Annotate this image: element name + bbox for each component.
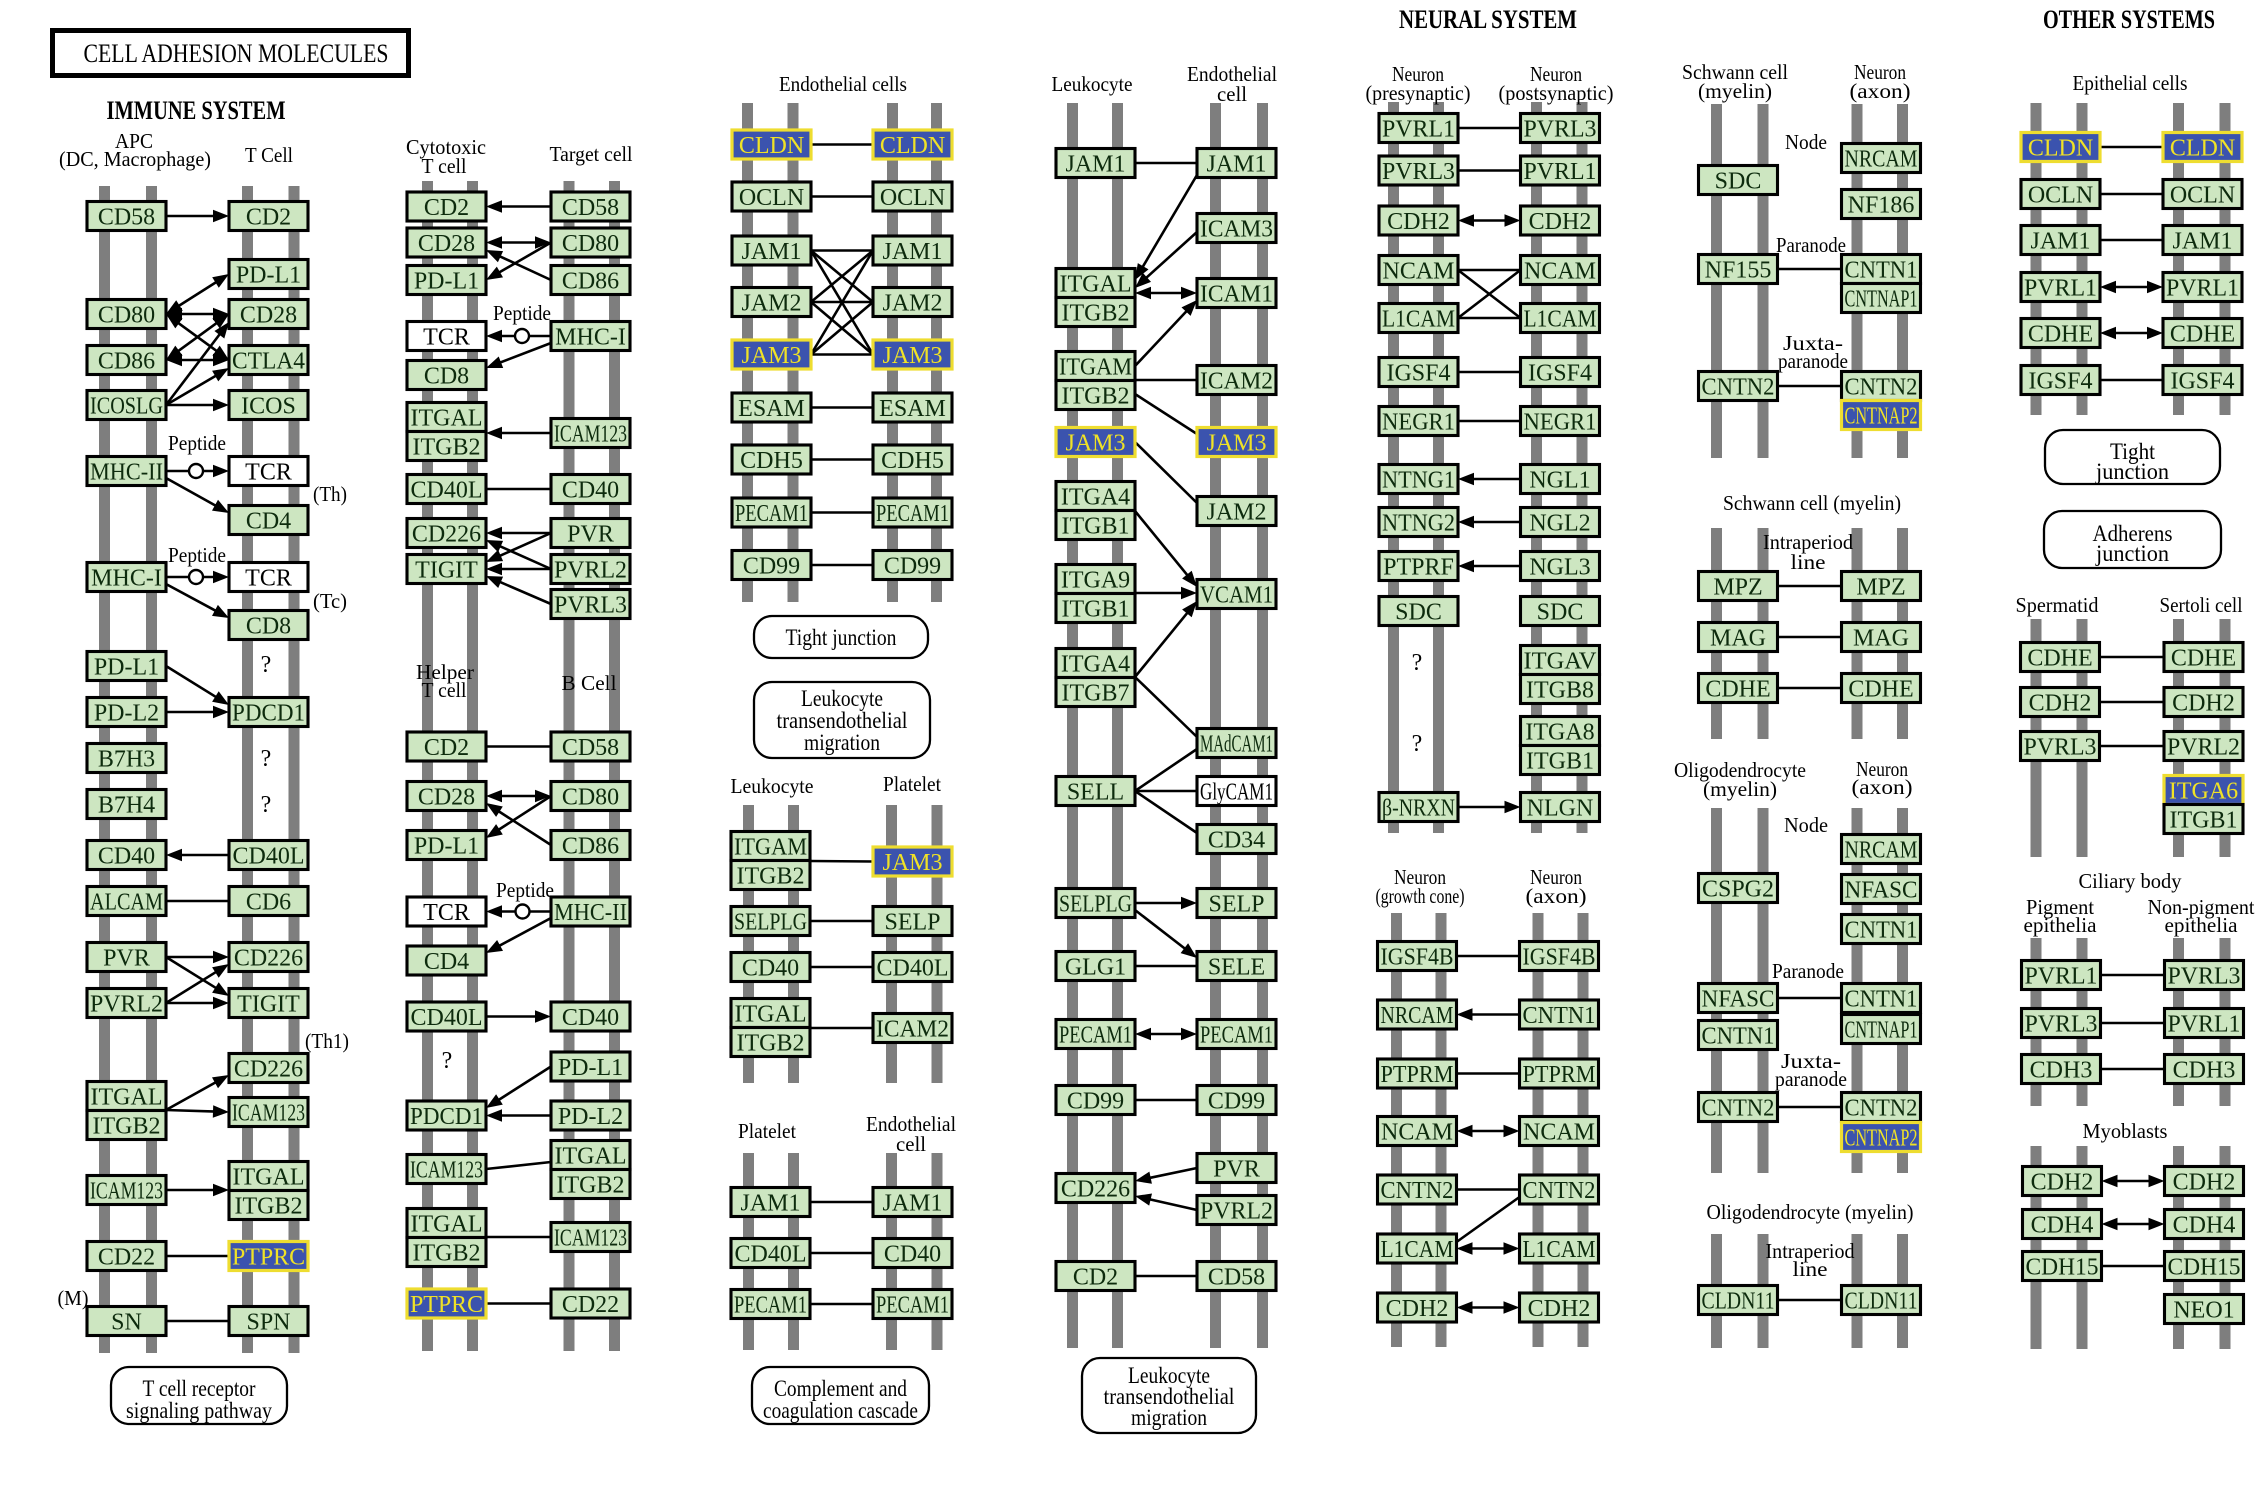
svg-text:NEO1: NEO1	[2173, 1298, 2234, 1324]
svg-text:(Th): (Th)	[313, 482, 347, 506]
svg-text:PECAM1: PECAM1	[734, 1293, 807, 1319]
svg-text:CDH2: CDH2	[2173, 1170, 2236, 1196]
svg-text:CD22: CD22	[562, 1292, 619, 1318]
svg-text:ITGB1: ITGB1	[1062, 597, 1130, 623]
svg-text:CD2: CD2	[246, 205, 291, 231]
svg-text:ESAM: ESAM	[738, 396, 805, 422]
svg-text:OCLN: OCLN	[739, 185, 804, 211]
svg-text:GlyCAM1: GlyCAM1	[1200, 780, 1273, 806]
svg-text:?: ?	[1412, 650, 1423, 676]
svg-text:PVRL3: PVRL3	[2025, 1012, 2098, 1038]
svg-text:CDH15: CDH15	[2168, 1255, 2241, 1281]
svg-text:SELL: SELL	[1067, 780, 1124, 806]
svg-text:MAG: MAG	[1853, 626, 1909, 652]
svg-text:ALCAM: ALCAM	[90, 890, 163, 916]
svg-text:SELP: SELP	[884, 910, 940, 936]
svg-text:PVRL3: PVRL3	[2024, 735, 2097, 761]
svg-text:junction: junction	[2095, 541, 2169, 566]
svg-text:?: ?	[1412, 731, 1423, 757]
svg-text:CNTNAP2: CNTNAP2	[1845, 1126, 1918, 1152]
svg-text:ITGB2: ITGB2	[413, 435, 481, 461]
svg-text:paranode: paranode	[1778, 349, 1848, 373]
svg-text:PVRL1: PVRL1	[2024, 276, 2097, 302]
svg-text:NTNG2: NTNG2	[1382, 511, 1455, 537]
svg-text:L1CAM: L1CAM	[1524, 307, 1597, 333]
svg-text:CDH4: CDH4	[2173, 1213, 2236, 1239]
svg-text:CD40: CD40	[884, 1242, 941, 1268]
svg-text:TCR: TCR	[245, 460, 292, 486]
svg-text:JAM3: JAM3	[882, 850, 942, 876]
svg-text:CD99: CD99	[743, 554, 800, 580]
svg-text:ITGB2: ITGB2	[93, 1114, 161, 1140]
svg-text:CTLA4: CTLA4	[232, 349, 305, 375]
svg-text:NLGN: NLGN	[1527, 796, 1594, 822]
svg-text:ICAM2: ICAM2	[876, 1017, 949, 1043]
svg-text:CDHE: CDHE	[1848, 677, 1913, 703]
svg-text:CD40L: CD40L	[735, 1242, 807, 1268]
svg-text:SELPLG: SELPLG	[734, 910, 807, 936]
svg-text:CDHE: CDHE	[2027, 646, 2092, 672]
svg-text:PTPRC: PTPRC	[232, 1245, 305, 1271]
svg-text:cell: cell	[896, 1132, 926, 1156]
svg-text:CD226: CD226	[412, 522, 481, 548]
svg-text:PVRL2: PVRL2	[554, 558, 627, 584]
svg-text:L1CAM: L1CAM	[1381, 1237, 1454, 1263]
svg-text:Oligodendrocyte (myelin): Oligodendrocyte (myelin)	[1707, 1200, 1914, 1224]
svg-text:ICAM123: ICAM123	[410, 1158, 483, 1184]
svg-text:CD40L: CD40L	[877, 956, 949, 982]
svg-text:(postsynaptic): (postsynaptic)	[1499, 81, 1614, 105]
svg-text:B Cell: B Cell	[562, 671, 617, 695]
svg-text:IGSF4: IGSF4	[1528, 361, 1592, 387]
svg-text:NGL1: NGL1	[1529, 468, 1590, 494]
svg-text:CLDN: CLDN	[2028, 136, 2093, 162]
svg-text:Node: Node	[1785, 130, 1827, 154]
svg-text:JAM1: JAM1	[1206, 152, 1266, 178]
svg-text:VCAM1: VCAM1	[1200, 583, 1273, 609]
svg-text:ICAM123: ICAM123	[554, 422, 627, 448]
svg-text:CDH2: CDH2	[1386, 1296, 1449, 1322]
svg-text:NTNG1: NTNG1	[1382, 468, 1455, 494]
svg-text:NCAM: NCAM	[1524, 259, 1596, 285]
svg-text:?: ?	[442, 1048, 453, 1074]
svg-text:PECAM1: PECAM1	[735, 501, 808, 527]
svg-text:CNTNAP1: CNTNAP1	[1845, 1018, 1918, 1044]
svg-text:ITGB2: ITGB2	[1062, 301, 1130, 327]
svg-text:CDH3: CDH3	[2030, 1058, 2093, 1084]
svg-text:NF186: NF186	[1848, 193, 1915, 219]
svg-text:CNTNAP1: CNTNAP1	[1845, 287, 1918, 313]
svg-text:CD2: CD2	[1073, 1265, 1118, 1291]
svg-text:SDC: SDC	[1395, 600, 1442, 626]
svg-text:CNTN1: CNTN1	[1845, 918, 1918, 944]
svg-text:PVRL1: PVRL1	[1524, 159, 1597, 185]
svg-text:CDHE: CDHE	[2171, 646, 2236, 672]
svg-text:OTHER SYSTEMS: OTHER SYSTEMS	[2043, 5, 2215, 34]
svg-text:epithelia: epithelia	[2024, 913, 2098, 937]
svg-text:JAM1: JAM1	[882, 239, 942, 265]
svg-text:(myelin): (myelin)	[1703, 777, 1777, 801]
svg-text:PVRL3: PVRL3	[1382, 159, 1455, 185]
svg-text:PTPRM: PTPRM	[1381, 1062, 1454, 1088]
svg-text:ITGA4: ITGA4	[1061, 485, 1130, 511]
svg-text:CDHE: CDHE	[1705, 677, 1770, 703]
svg-text:TCR: TCR	[423, 900, 470, 926]
svg-text:PECAM1: PECAM1	[1200, 1023, 1273, 1049]
svg-text:Peptide: Peptide	[168, 543, 226, 567]
svg-text:Ciliary body: Ciliary body	[2079, 869, 2182, 893]
svg-text:ITGA4: ITGA4	[1061, 652, 1130, 678]
svg-text:signaling pathway: signaling pathway	[126, 1398, 272, 1423]
svg-text:Platelet: Platelet	[738, 1119, 796, 1143]
svg-text:NRCAM: NRCAM	[1381, 1003, 1454, 1029]
svg-text:CD80: CD80	[98, 303, 155, 329]
svg-text:CD40: CD40	[742, 956, 799, 982]
svg-text:OCLN: OCLN	[2170, 183, 2235, 209]
svg-text:CDHE: CDHE	[2170, 322, 2235, 348]
svg-text:CD40: CD40	[562, 478, 619, 504]
svg-text:PTPRC: PTPRC	[410, 1292, 483, 1318]
svg-text:SPN: SPN	[246, 1310, 290, 1336]
svg-text:ITGB2: ITGB2	[737, 864, 805, 890]
svg-text:CELL ADHESION MOLECULES: CELL ADHESION MOLECULES	[84, 39, 389, 68]
svg-text:ESAM: ESAM	[879, 396, 946, 422]
svg-text:CNTN1: CNTN1	[1845, 258, 1918, 284]
svg-text:PVR: PVR	[1213, 1157, 1260, 1183]
svg-text:L1CAM: L1CAM	[1523, 1237, 1596, 1263]
svg-text:CD22: CD22	[98, 1245, 155, 1271]
svg-text:ICOSLG: ICOSLG	[90, 394, 163, 420]
svg-text:Platelet: Platelet	[883, 772, 941, 796]
svg-text:SELP: SELP	[1208, 892, 1264, 918]
svg-text:ITGB8: ITGB8	[1526, 678, 1594, 704]
svg-text:ICAM3: ICAM3	[1200, 217, 1273, 243]
svg-text:ITGAL: ITGAL	[91, 1085, 163, 1111]
svg-text:CNTN1: CNTN1	[1845, 987, 1918, 1013]
svg-text:NEGR1: NEGR1	[1524, 410, 1597, 436]
svg-text:MPZ: MPZ	[1713, 575, 1762, 601]
svg-text:ITGA6: ITGA6	[2169, 779, 2238, 805]
svg-text:ICAM123: ICAM123	[232, 1101, 305, 1127]
svg-text:CDH2: CDH2	[1529, 209, 1592, 235]
svg-text:CDH15: CDH15	[2026, 1255, 2099, 1281]
svg-text:CDH2: CDH2	[1387, 209, 1450, 235]
svg-text:ICOS: ICOS	[241, 394, 296, 420]
svg-text:NF155: NF155	[1705, 258, 1772, 284]
svg-text:PVRL2: PVRL2	[90, 992, 163, 1018]
svg-text:IGSF4: IGSF4	[2170, 369, 2234, 395]
svg-text:T cell: T cell	[422, 678, 467, 702]
svg-text:line: line	[1793, 1257, 1828, 1281]
svg-text:CNTN2: CNTN2	[1381, 1178, 1454, 1204]
svg-text:Endothelial cells: Endothelial cells	[779, 72, 907, 96]
svg-text:CNTN2: CNTN2	[1845, 1096, 1918, 1122]
svg-text:Epithelial cells: Epithelial cells	[2073, 71, 2188, 95]
svg-text:PD-L1: PD-L1	[94, 655, 159, 681]
svg-text:JAM3: JAM3	[1065, 431, 1125, 457]
svg-text:NFASC: NFASC	[1845, 878, 1918, 904]
svg-text:PVRL1: PVRL1	[2025, 964, 2098, 990]
svg-text:(DC, Macrophage): (DC, Macrophage)	[59, 147, 211, 171]
svg-text:JAM1: JAM1	[740, 1191, 800, 1217]
svg-text:NRCAM: NRCAM	[1845, 838, 1918, 864]
svg-text:CD80: CD80	[562, 785, 619, 811]
svg-text:B7H4: B7H4	[98, 793, 155, 819]
svg-text:SELE: SELE	[1208, 955, 1265, 981]
svg-text:CD40: CD40	[562, 1005, 619, 1031]
svg-text:Paranode: Paranode	[1776, 233, 1846, 257]
svg-text:L1CAM: L1CAM	[1382, 307, 1455, 333]
svg-text:CD6: CD6	[246, 890, 291, 916]
svg-text:MPZ: MPZ	[1856, 575, 1905, 601]
svg-text:CD4: CD4	[246, 509, 291, 535]
svg-text:CDH4: CDH4	[2031, 1213, 2094, 1239]
svg-text:cell: cell	[1217, 82, 1247, 106]
svg-text:CLDN11: CLDN11	[1845, 1289, 1918, 1315]
svg-text:ICAM123: ICAM123	[90, 1179, 163, 1205]
svg-text:MAG: MAG	[1710, 626, 1766, 652]
svg-text:migration: migration	[1131, 1405, 1207, 1430]
svg-text:CD40L: CD40L	[233, 844, 305, 870]
svg-text:PVRL3: PVRL3	[2168, 964, 2241, 990]
svg-text:NRCAM: NRCAM	[1845, 147, 1918, 173]
svg-text:IMMUNE SYSTEM: IMMUNE SYSTEM	[107, 96, 286, 125]
svg-text:NEGR1: NEGR1	[1382, 410, 1455, 436]
svg-text:paranode: paranode	[1775, 1067, 1847, 1091]
svg-text:MHC-II: MHC-II	[90, 460, 163, 486]
svg-text:CD86: CD86	[562, 269, 619, 295]
svg-text:SELPLG: SELPLG	[1059, 892, 1132, 918]
svg-text:ITGB2: ITGB2	[557, 1173, 625, 1199]
svg-text:(axon): (axon)	[1526, 884, 1587, 908]
svg-text:?: ?	[261, 792, 272, 818]
svg-text:CD86: CD86	[98, 349, 155, 375]
svg-text:CNTN1: CNTN1	[1702, 1024, 1775, 1050]
svg-text:NGL3: NGL3	[1529, 555, 1590, 581]
svg-text:ITGAL: ITGAL	[233, 1165, 305, 1191]
svg-text:CD58: CD58	[562, 735, 619, 761]
svg-text:CDH3: CDH3	[2173, 1058, 2236, 1084]
svg-text:(Tc): (Tc)	[313, 589, 347, 613]
svg-text:NCAM: NCAM	[1381, 1120, 1453, 1146]
svg-text:PDCD1: PDCD1	[410, 1104, 483, 1130]
svg-text:ICAM123: ICAM123	[554, 1226, 627, 1252]
svg-text:CD28: CD28	[240, 303, 297, 329]
svg-text:CLDN: CLDN	[880, 133, 945, 159]
svg-text:CDH2: CDH2	[2172, 691, 2235, 717]
svg-text:Paranode: Paranode	[1772, 959, 1844, 983]
svg-text:CNTN1: CNTN1	[1523, 1003, 1596, 1029]
svg-text:Peptide: Peptide	[168, 431, 226, 455]
svg-text:Node: Node	[1784, 813, 1828, 837]
svg-text:TCR: TCR	[423, 325, 470, 351]
svg-text:CDH2: CDH2	[1528, 1296, 1591, 1322]
svg-text:CDHE: CDHE	[2028, 322, 2093, 348]
svg-text:Target cell: Target cell	[550, 142, 633, 166]
svg-text:CD8: CD8	[246, 614, 291, 640]
svg-text:JAM1: JAM1	[1065, 152, 1125, 178]
svg-text:TIGIT: TIGIT	[415, 558, 478, 584]
svg-text:CNTN2: CNTN2	[1702, 1096, 1775, 1122]
svg-text:ITGA8: ITGA8	[1525, 720, 1594, 746]
svg-text:CSPG2: CSPG2	[1702, 877, 1774, 903]
svg-text:ITGAL: ITGAL	[735, 1002, 807, 1028]
svg-text:CD40: CD40	[98, 844, 155, 870]
svg-text:(M): (M)	[58, 1286, 89, 1310]
svg-text:CDH5: CDH5	[881, 448, 944, 474]
svg-text:PD-L1: PD-L1	[414, 269, 479, 295]
svg-text:CD58: CD58	[562, 195, 619, 221]
svg-text:IGSF4: IGSF4	[1386, 361, 1450, 387]
svg-text:NCAM: NCAM	[1523, 1120, 1595, 1146]
svg-text:CD28: CD28	[418, 785, 475, 811]
svg-text:Leukocyte: Leukocyte	[731, 774, 814, 798]
svg-text:CD2: CD2	[424, 735, 469, 761]
svg-text:junction: junction	[2095, 459, 2169, 484]
svg-text:Myoblasts: Myoblasts	[2083, 1119, 2168, 1143]
svg-text:CD40L: CD40L	[411, 1005, 483, 1031]
svg-text:ITGAL: ITGAL	[1060, 272, 1132, 298]
svg-text:ITGB7: ITGB7	[1062, 681, 1130, 707]
svg-text:JAM1: JAM1	[2030, 229, 2090, 255]
svg-text:CD86: CD86	[562, 834, 619, 860]
svg-text:NFASC: NFASC	[1702, 987, 1775, 1013]
svg-text:CD99: CD99	[884, 554, 941, 580]
svg-text:(growth cone): (growth cone)	[1376, 884, 1465, 908]
svg-text:MHC-I: MHC-I	[91, 566, 162, 592]
svg-text:JAM2: JAM2	[741, 291, 801, 317]
svg-text:NGL2: NGL2	[1529, 511, 1590, 537]
svg-text:CD99: CD99	[1208, 1089, 1265, 1115]
svg-text:CD28: CD28	[418, 231, 475, 257]
svg-text:?: ?	[261, 652, 272, 678]
svg-text:IGSF4B: IGSF4B	[1381, 945, 1454, 971]
svg-text:JAM2: JAM2	[882, 291, 942, 317]
svg-text:ITGB1: ITGB1	[1062, 514, 1130, 540]
svg-text:ITGAL: ITGAL	[555, 1144, 627, 1170]
svg-text:CD99: CD99	[1067, 1089, 1124, 1115]
svg-text:Peptide: Peptide	[496, 878, 554, 902]
svg-text:ICAM1: ICAM1	[1200, 282, 1273, 308]
svg-text:Leukocyte: Leukocyte	[1052, 72, 1133, 96]
svg-text:TIGIT: TIGIT	[237, 992, 300, 1018]
svg-text:(axon): (axon)	[1850, 79, 1911, 103]
svg-text:PVRL1: PVRL1	[2168, 1012, 2241, 1038]
svg-text:ITGB1: ITGB1	[1526, 749, 1594, 775]
svg-text:NEURAL SYSTEM: NEURAL SYSTEM	[1399, 5, 1577, 34]
svg-text:coagulation cascade: coagulation cascade	[763, 1398, 918, 1423]
svg-text:(myelin): (myelin)	[1698, 79, 1772, 103]
svg-text:ITGB2: ITGB2	[1062, 384, 1130, 410]
svg-text:CNTN2: CNTN2	[1523, 1178, 1596, 1204]
svg-text:ITGB2: ITGB2	[413, 1241, 481, 1267]
svg-text:JAM3: JAM3	[741, 343, 801, 369]
svg-text:ITGAM: ITGAM	[734, 835, 807, 861]
svg-text:IGSF4: IGSF4	[2028, 369, 2092, 395]
svg-text:Tight junction: Tight junction	[786, 625, 897, 650]
svg-text:Peptide: Peptide	[493, 301, 551, 325]
svg-text:PD-L2: PD-L2	[94, 701, 159, 727]
svg-text:OCLN: OCLN	[880, 185, 945, 211]
svg-text:CD226: CD226	[234, 1057, 303, 1083]
svg-text:CLDN: CLDN	[2170, 136, 2235, 162]
svg-text:CNTNAP2: CNTNAP2	[1845, 404, 1918, 430]
svg-text:MHC-I: MHC-I	[555, 325, 626, 351]
svg-text:CNTN2: CNTN2	[1702, 375, 1775, 401]
svg-text:ITGB1: ITGB1	[2170, 808, 2238, 834]
svg-text:ITGB2: ITGB2	[737, 1031, 805, 1057]
svg-text:CD40L: CD40L	[411, 478, 483, 504]
svg-text:line: line	[1791, 550, 1826, 574]
svg-text:ITGB2: ITGB2	[235, 1194, 303, 1220]
svg-text:CD226: CD226	[1061, 1177, 1130, 1203]
svg-text:PECAM1: PECAM1	[876, 1293, 949, 1319]
svg-text:SN: SN	[111, 1310, 142, 1336]
svg-text:PVRL2: PVRL2	[2167, 735, 2240, 761]
svg-text:PVR: PVR	[567, 522, 614, 548]
svg-text:CD4: CD4	[424, 949, 469, 975]
svg-text:PVRL3: PVRL3	[1524, 117, 1597, 143]
svg-text:JAM3: JAM3	[1206, 431, 1266, 457]
svg-text:CLDN: CLDN	[739, 133, 804, 159]
svg-text:JAM1: JAM1	[2172, 229, 2232, 255]
svg-text:ITGAL: ITGAL	[411, 1212, 483, 1238]
svg-text:PDCD1: PDCD1	[232, 701, 305, 727]
svg-text:CD34: CD34	[1208, 828, 1265, 854]
svg-text:PVRL1: PVRL1	[1382, 117, 1455, 143]
svg-text:Sertoli cell: Sertoli cell	[2160, 593, 2243, 617]
svg-text:PTPRM: PTPRM	[1523, 1062, 1596, 1088]
svg-text:PECAM1: PECAM1	[1059, 1023, 1132, 1049]
svg-text:GLG1: GLG1	[1065, 955, 1126, 981]
svg-text:ICAM2: ICAM2	[1200, 369, 1273, 395]
svg-text:PVR: PVR	[103, 946, 150, 972]
svg-text:PD-L1: PD-L1	[414, 834, 479, 860]
svg-text:PTPRF: PTPRF	[1383, 555, 1454, 581]
svg-text:(axon): (axon)	[1852, 775, 1913, 799]
svg-text:PD-L2: PD-L2	[558, 1104, 623, 1130]
svg-text:Schwann cell (myelin): Schwann cell (myelin)	[1723, 491, 1901, 515]
svg-text:IGSF4B: IGSF4B	[1523, 945, 1596, 971]
svg-text:?: ?	[261, 746, 272, 772]
svg-text:T Cell: T Cell	[245, 143, 293, 167]
svg-text:MAdCAM1: MAdCAM1	[1200, 732, 1273, 758]
svg-text:JAM1: JAM1	[882, 1191, 942, 1217]
svg-text:(presynaptic): (presynaptic)	[1366, 81, 1471, 105]
svg-text:CDH2: CDH2	[2029, 691, 2092, 717]
svg-text:CDH2: CDH2	[2031, 1170, 2094, 1196]
svg-text:CD226: CD226	[234, 946, 303, 972]
svg-text:ITGAL: ITGAL	[411, 406, 483, 432]
svg-text:JAM3: JAM3	[882, 343, 942, 369]
svg-text:PVRL3: PVRL3	[554, 593, 627, 619]
svg-text:CD58: CD58	[98, 205, 155, 231]
svg-text:NCAM: NCAM	[1382, 259, 1454, 285]
svg-text:PD-L1: PD-L1	[558, 1055, 623, 1081]
svg-text:CD80: CD80	[562, 231, 619, 257]
svg-text:B7H3: B7H3	[98, 747, 155, 773]
svg-text:PVRL1: PVRL1	[2166, 276, 2239, 302]
svg-text:T cell: T cell	[422, 154, 467, 178]
svg-text:PVRL2: PVRL2	[1200, 1199, 1273, 1225]
svg-text:ITGAM: ITGAM	[1059, 355, 1132, 381]
svg-text:epithelia: epithelia	[2165, 913, 2239, 937]
svg-text:MHC-II: MHC-II	[554, 900, 627, 926]
svg-text:CNTN2: CNTN2	[1845, 375, 1918, 401]
svg-text:CDH5: CDH5	[740, 448, 803, 474]
svg-text:Spermatid: Spermatid	[2016, 593, 2099, 617]
svg-text:CLDN11: CLDN11	[1702, 1289, 1775, 1315]
